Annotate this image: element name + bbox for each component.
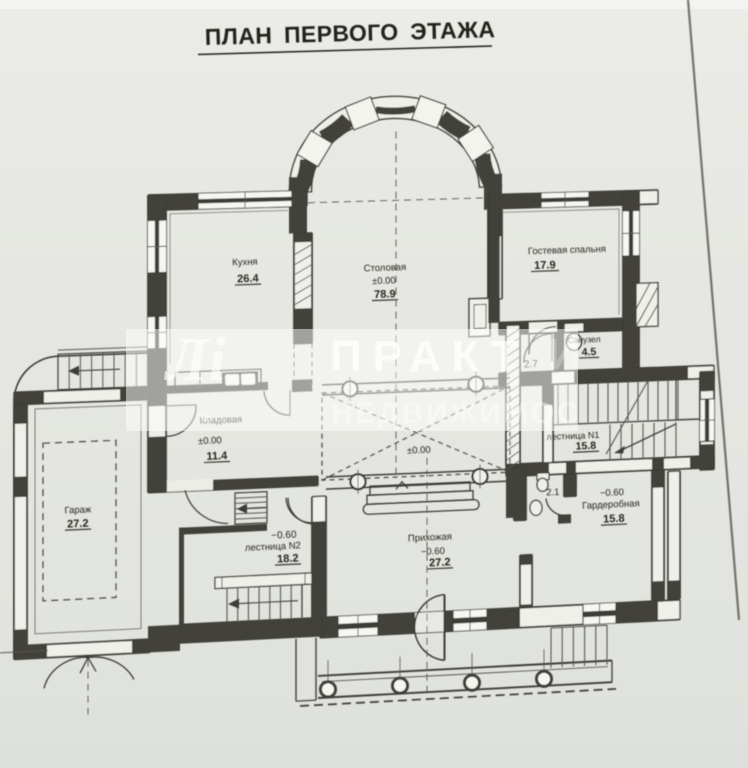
svg-text:17.9: 17.9	[534, 259, 556, 272]
svg-text:−0.60: −0.60	[600, 487, 625, 499]
svg-text:ль: ль	[195, 405, 213, 425]
svg-text:27.2: 27.2	[67, 518, 89, 531]
svg-text:Гараж: Гараж	[64, 504, 92, 516]
svg-text:27.2: 27.2	[429, 556, 451, 569]
svg-text:±0.00: ±0.00	[372, 275, 396, 287]
svg-text:±0.00: ±0.00	[407, 445, 431, 457]
svg-text:ПРАКТ: ПРАКТ	[330, 332, 529, 381]
svg-text:15.8: 15.8	[575, 440, 596, 453]
svg-text:26.4: 26.4	[237, 273, 260, 286]
svg-text:Прихожая: Прихожая	[408, 531, 452, 544]
svg-text:Лi: Лi	[163, 326, 226, 394]
svg-text:2.1: 2.1	[546, 487, 560, 499]
svg-text:18.2: 18.2	[277, 553, 299, 566]
svg-text:15.8: 15.8	[603, 513, 625, 526]
svg-text:±0.00: ±0.00	[198, 435, 222, 447]
svg-text:Столовая: Столовая	[364, 262, 407, 274]
svg-text:11.4: 11.4	[206, 450, 228, 463]
svg-text:78.9: 78.9	[374, 288, 396, 301]
svg-text:4.5: 4.5	[581, 346, 596, 359]
svg-text:Кухня: Кухня	[232, 257, 258, 269]
